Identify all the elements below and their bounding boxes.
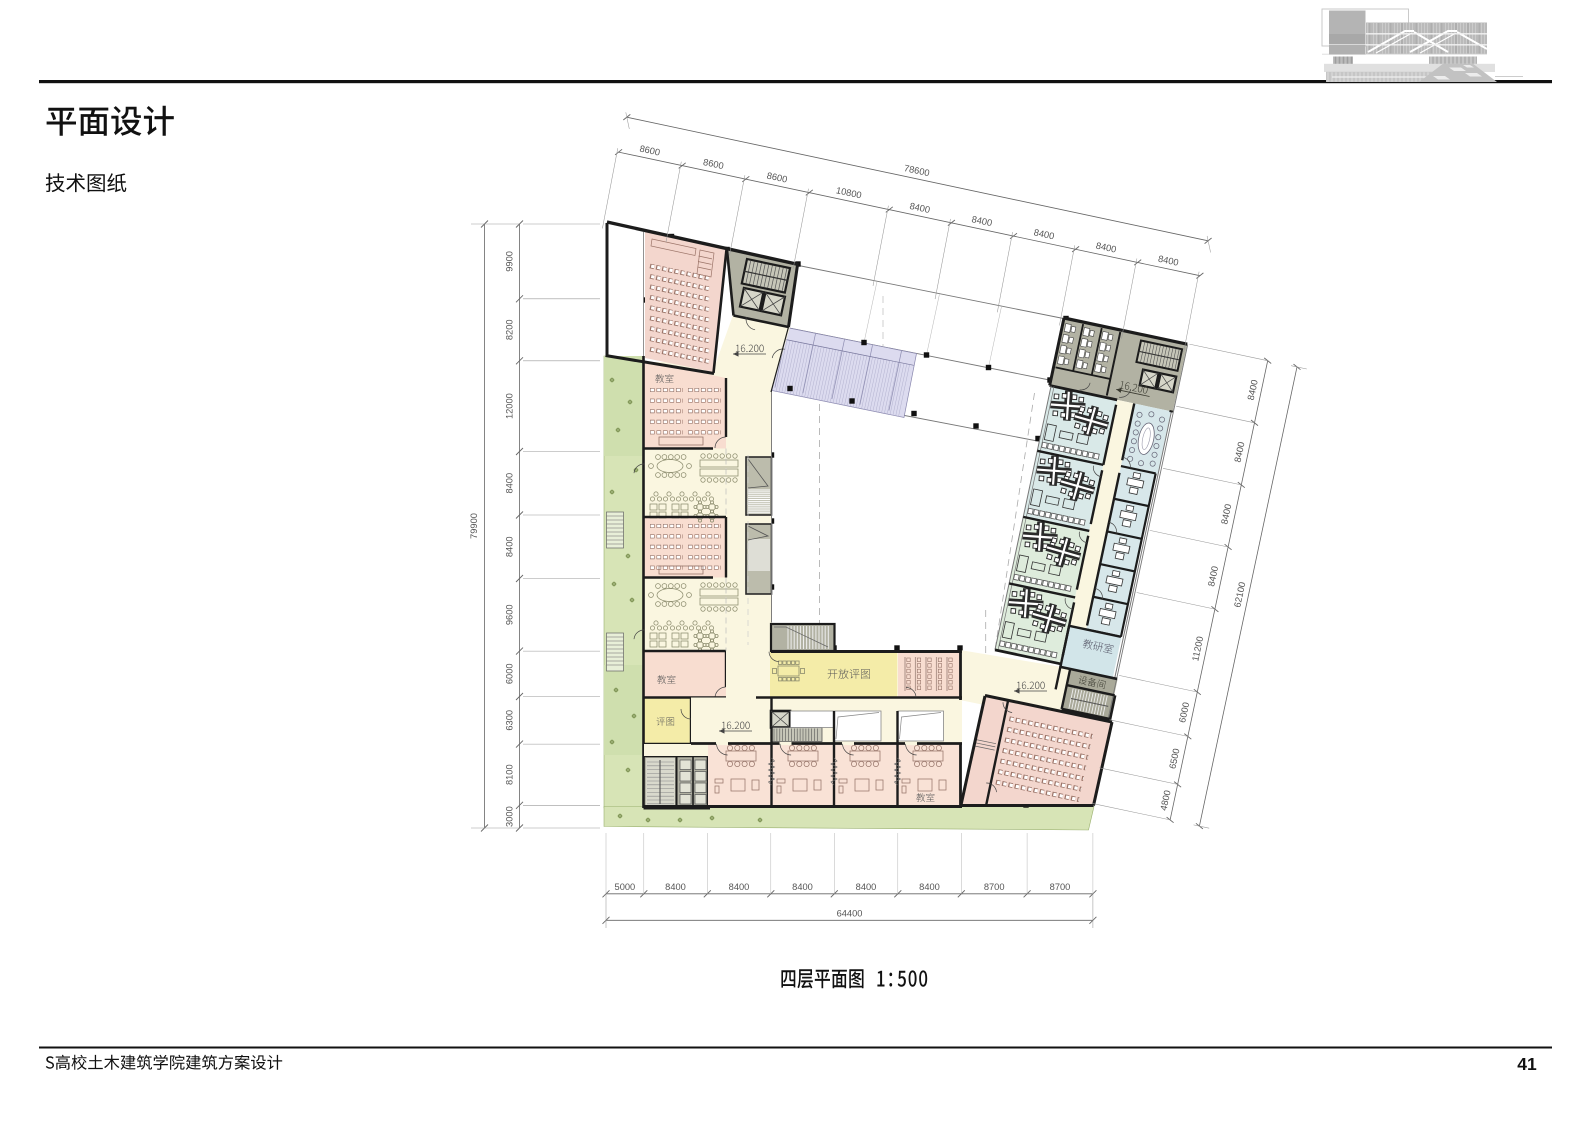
svg-text:12000: 12000 [505, 393, 515, 419]
svg-text:8100: 8100 [505, 764, 515, 785]
svg-text:8200: 8200 [505, 319, 515, 340]
svg-text:79900: 79900 [469, 513, 479, 539]
svg-text:6300: 6300 [505, 710, 515, 731]
svg-text:8700: 8700 [1050, 882, 1071, 892]
svg-text:8400: 8400 [792, 882, 813, 892]
svg-text:9900: 9900 [505, 251, 515, 272]
svg-text:8400: 8400 [856, 882, 877, 892]
svg-text:8700: 8700 [984, 882, 1005, 892]
svg-text:8400: 8400 [729, 882, 750, 892]
svg-text:8400: 8400 [505, 536, 515, 557]
svg-text:6000: 6000 [505, 663, 515, 684]
svg-text:41: 41 [1517, 1054, 1537, 1074]
svg-text:64400: 64400 [837, 908, 863, 918]
svg-text:5000: 5000 [615, 882, 636, 892]
svg-text:8400: 8400 [919, 882, 940, 892]
svg-text:9600: 9600 [505, 604, 515, 625]
svg-text:3000: 3000 [505, 806, 515, 827]
svg-text:8400: 8400 [505, 473, 515, 494]
svg-text:8400: 8400 [665, 882, 686, 892]
